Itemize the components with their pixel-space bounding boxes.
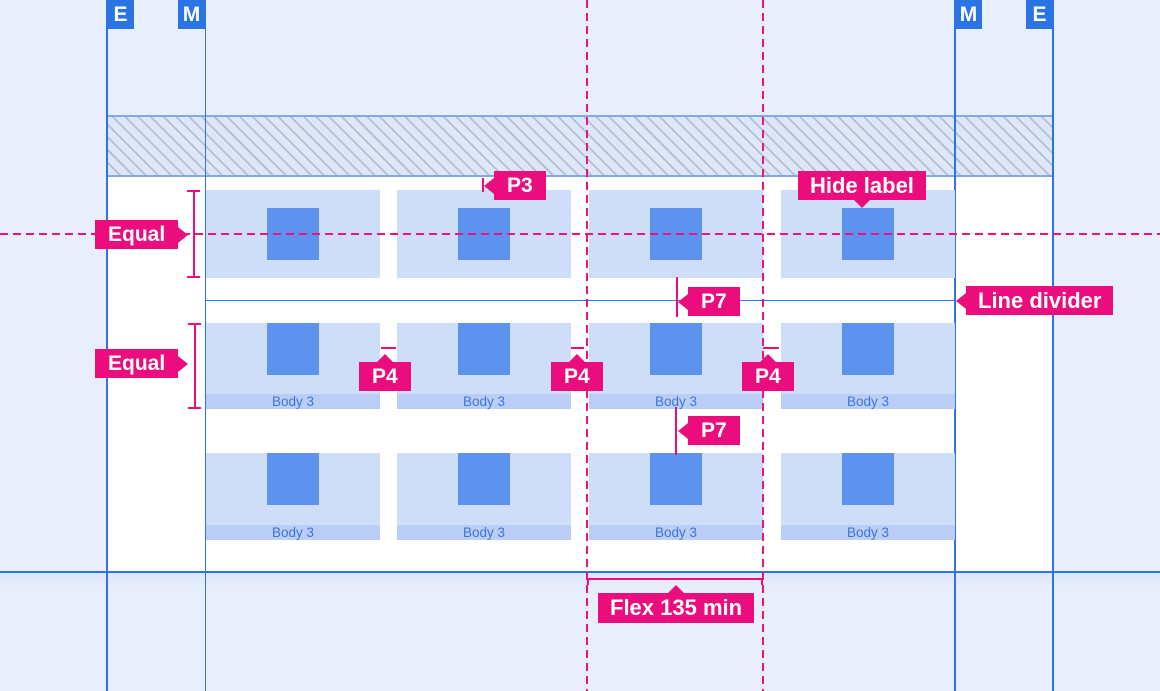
card-row3-col3: Body 3 xyxy=(589,453,763,540)
thumbnail-square xyxy=(458,453,510,505)
card-footer-label: Body 3 xyxy=(463,525,505,540)
thumbnail-square xyxy=(842,323,894,375)
guide-line-right-edge xyxy=(1052,0,1054,691)
sheet-bottom-glow xyxy=(0,573,1160,589)
card-footer: Body 3 xyxy=(206,525,380,540)
card-footer: Body 3 xyxy=(397,525,571,540)
card-footer: Body 3 xyxy=(206,394,380,409)
p4-gap-tick-left xyxy=(381,347,396,349)
breakpoint-badge-e-right: E xyxy=(1026,0,1053,29)
card-footer-label: Body 3 xyxy=(847,394,889,409)
thumbnail-square xyxy=(267,453,319,505)
sheet-bottom-line xyxy=(0,571,1160,573)
vertical-dashed-keyline-right xyxy=(762,0,764,691)
thumbnail-square xyxy=(650,323,702,375)
card-footer-label: Body 3 xyxy=(655,525,697,540)
p4-label-right: P4 xyxy=(742,362,794,391)
breakpoint-badge-m-right: M xyxy=(955,0,982,29)
p3-label: P3 xyxy=(494,171,546,200)
p7-gap-line-lower xyxy=(675,407,677,455)
thumbnail-square xyxy=(458,323,510,375)
card-row3-col1: Body 3 xyxy=(206,453,380,540)
card-footer-label: Body 3 xyxy=(272,525,314,540)
card-row3-col4: Body 3 xyxy=(781,453,955,540)
layout-spec-diagram: Body 3 Body 3 Body 3 Body 3 Body 3 Body … xyxy=(0,0,1160,691)
equal-label-bottom: Equal xyxy=(95,349,178,378)
p7-label-lower: P7 xyxy=(688,416,740,445)
card-row2-col4: Body 3 xyxy=(781,323,955,409)
equal-height-measure-row2 xyxy=(188,323,201,409)
card-footer: Body 3 xyxy=(397,394,571,409)
app-bar-hatched-band xyxy=(106,115,1053,177)
card-footer: Body 3 xyxy=(781,525,955,540)
card-footer: Body 3 xyxy=(589,525,763,540)
card-row3-col2: Body 3 xyxy=(397,453,571,540)
thumbnail-square xyxy=(842,453,894,505)
card-footer-label: Body 3 xyxy=(272,394,314,409)
hide-label-callout: Hide label xyxy=(798,171,926,200)
line-divider-callout: Line divider xyxy=(966,286,1113,315)
card-footer-label: Body 3 xyxy=(463,394,505,409)
row-divider-line xyxy=(205,300,955,302)
flex-min-callout: Flex 135 min xyxy=(598,593,754,623)
equal-label-top: Equal xyxy=(95,220,178,249)
card-row2-col3: Body 3 xyxy=(589,323,763,409)
equal-height-measure-row1 xyxy=(187,190,200,278)
thumbnail-square xyxy=(267,323,319,375)
p4-gap-tick-right xyxy=(763,347,779,349)
card-footer-label: Body 3 xyxy=(847,525,889,540)
flex-width-bracket xyxy=(587,578,763,585)
p4-label-left: P4 xyxy=(359,362,411,391)
card-row2-col1: Body 3 xyxy=(206,323,380,409)
p4-label-middle: P4 xyxy=(551,362,603,391)
breakpoint-badge-m-left: M xyxy=(178,0,205,29)
p4-gap-tick-middle xyxy=(571,347,584,349)
thumbnail-square xyxy=(650,453,702,505)
vertical-dashed-keyline-left xyxy=(586,0,588,691)
guide-line-left-edge xyxy=(106,0,108,691)
card-row2-col2: Body 3 xyxy=(397,323,571,409)
p7-label-upper: P7 xyxy=(688,287,740,316)
breakpoint-badge-e-left: E xyxy=(107,0,134,29)
card-footer: Body 3 xyxy=(781,394,955,409)
